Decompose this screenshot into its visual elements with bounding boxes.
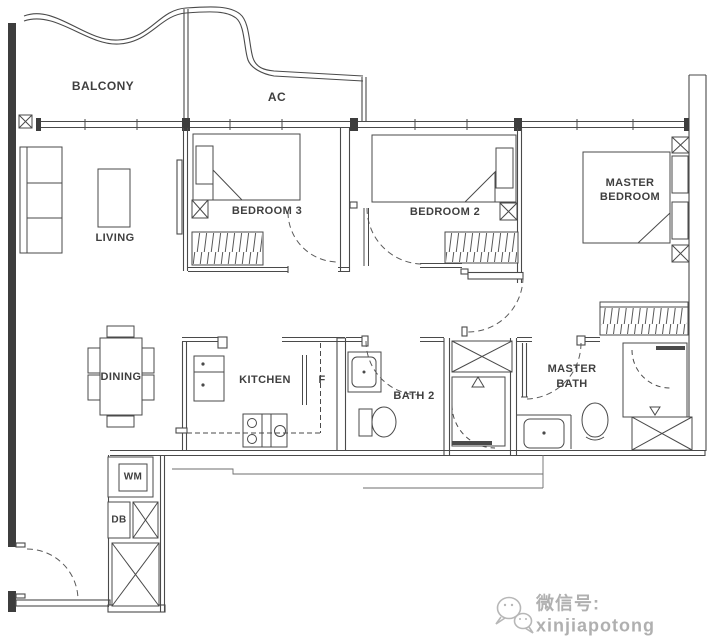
left-wall — [8, 23, 16, 547]
shaft-x-box — [133, 502, 158, 538]
room-label-ac: AC — [268, 90, 286, 104]
toilet-tank — [359, 409, 372, 436]
room-label-dining: DINING — [101, 371, 142, 383]
label-washing-machine: WM — [124, 472, 143, 483]
right-wall — [689, 75, 706, 451]
entrance-door-arc — [27, 549, 78, 600]
kitchen-sink — [194, 356, 224, 401]
room-label-kitchen: KITCHEN — [239, 374, 291, 386]
wardrobes — [192, 232, 688, 335]
shaft-x-box — [452, 341, 512, 372]
corridor-door-leaf — [468, 273, 523, 280]
pillow — [196, 146, 213, 184]
shaft-x-box — [19, 115, 32, 128]
room-label-bedroom3: BEDROOM 3 — [232, 205, 302, 217]
wechat-icon — [496, 598, 533, 634]
watermark-text: 微信号: xinjiapotong — [536, 590, 720, 637]
balcony-curved-wall — [24, 7, 363, 76]
pillow — [672, 156, 688, 193]
shaft-x-box — [112, 543, 159, 606]
floorplan-page: BALCONY AC LIVING BEDROOM 3 BEDROOM 2 MA… — [0, 0, 720, 644]
room-label-bath2: BATH 2 — [393, 390, 434, 402]
shaft-x-box — [672, 137, 689, 153]
room-label-living: LIVING — [95, 232, 134, 244]
kitchen-fixtures — [187, 343, 322, 447]
room-label-master-bedroom-line2: BEDROOM — [600, 190, 660, 204]
room-label-balcony: BALCONY — [72, 79, 134, 93]
bedroom3-door-arc — [288, 212, 338, 262]
floorplan-drawing — [0, 0, 720, 644]
sofa — [20, 147, 62, 253]
room-label-master-bedroom-line1: MASTER — [600, 176, 660, 190]
coffee-table — [98, 169, 130, 227]
shaft-x-box — [500, 203, 517, 220]
room-label-master-bath: MASTER BATH — [548, 362, 597, 392]
pillow — [496, 148, 513, 188]
shaft-x-box — [632, 417, 692, 450]
bed-bedroom3 — [193, 134, 300, 200]
label-distribution-board: DB — [111, 515, 126, 526]
room-label-master-bedroom: MASTER BEDROOM — [600, 176, 660, 204]
corridor-door-arc — [468, 277, 523, 332]
room-label-master-bath-line2: BATH — [548, 377, 597, 392]
door-leaves — [364, 208, 369, 266]
bed-bedroom2 — [372, 135, 516, 202]
bedroom2-door-leaf — [364, 208, 369, 266]
pillow — [672, 202, 688, 239]
label-fridge: F — [318, 374, 325, 386]
ledge-lines — [172, 455, 543, 488]
room-label-bedroom2: BEDROOM 2 — [410, 206, 480, 218]
toilet-bowl — [372, 407, 396, 437]
room-label-master-bath-line1: MASTER — [548, 362, 597, 377]
shaft-x-box — [672, 245, 689, 262]
shaft-x-box — [192, 200, 208, 218]
toilet-bowl — [582, 403, 608, 437]
